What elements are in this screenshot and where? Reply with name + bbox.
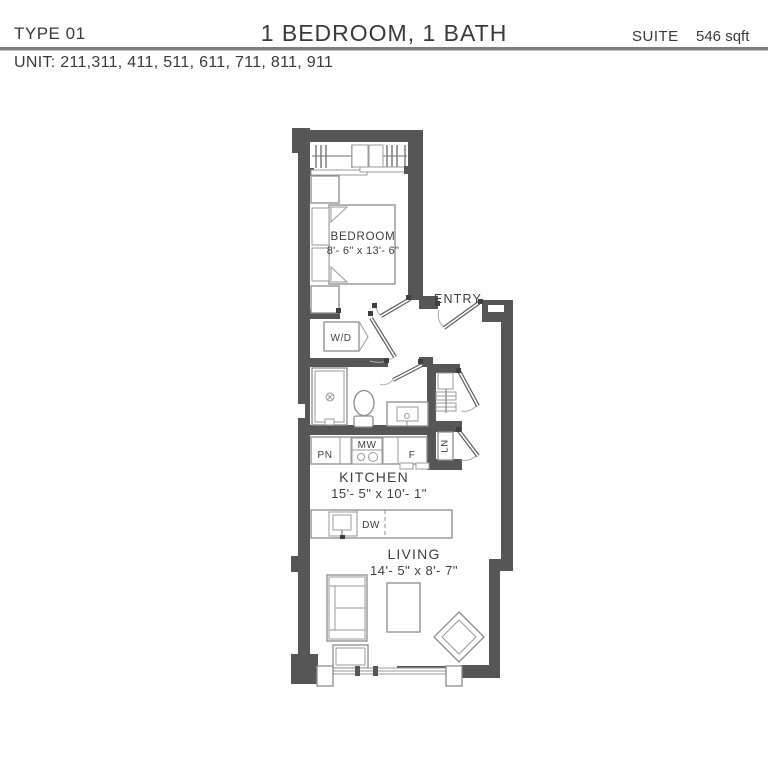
window-mullion <box>373 666 378 676</box>
wall-segment <box>489 559 513 571</box>
door-leaf-closet-lower-fill <box>459 431 478 456</box>
nightstand <box>311 176 339 203</box>
wall-segment <box>294 130 423 142</box>
bathroom <box>312 368 428 427</box>
shower-door-mark <box>325 419 334 425</box>
column-post <box>446 666 462 686</box>
living-dimensions: 14'- 5" x 8'- 7" <box>370 563 458 578</box>
sofa-cushion <box>335 586 365 608</box>
wall-segment <box>291 556 310 572</box>
bedroom-closet <box>309 145 409 176</box>
island-faucet-base <box>340 535 345 539</box>
door-swing-arc <box>461 405 477 411</box>
wall-segment <box>291 654 318 684</box>
door-leaf-closet-upper-fill <box>459 371 478 406</box>
floor-plan-drawing: BEDROOM 8'- 6" x 13'- 6" W/D <box>0 0 768 769</box>
tv-console-inner <box>336 648 365 665</box>
door-leaf-laundry-fill <box>371 318 395 357</box>
door-swing-arc <box>380 379 394 385</box>
fridge-handle <box>416 463 429 469</box>
slider-end-cap <box>404 166 409 174</box>
kitchen-dimensions: 15'- 5" x 10'- 1" <box>331 486 427 501</box>
floor-plan-page: TYPE 01 1 BEDROOM, 1 BATH SUITE 546 sqft… <box>0 0 768 769</box>
laundry-closet: W/D <box>324 322 368 351</box>
wall-segment <box>461 665 500 678</box>
washer-door-swing <box>360 323 368 350</box>
wall-segment <box>408 142 423 300</box>
sliding-door-panel <box>360 167 408 172</box>
wall-recess <box>298 404 305 418</box>
microwave-label: MW <box>358 440 377 451</box>
closet-shelf <box>438 373 453 389</box>
hall-closets: LN <box>436 373 456 460</box>
closet-shelf <box>352 145 368 167</box>
bedroom-label: BEDROOM <box>330 231 395 243</box>
toilet-tank <box>354 416 373 427</box>
bedroom-furniture: BEDROOM 8'- 6" x 13'- 6" <box>311 176 399 313</box>
toilet-bowl <box>354 391 374 416</box>
doors <box>336 295 483 460</box>
living-room: LIVING 14'- 5" x 8'- 7" <box>327 546 484 668</box>
fridge-label: F <box>409 450 416 461</box>
door-leaf-bedroom-fill <box>381 299 410 316</box>
closet-shelf <box>369 145 383 167</box>
sofa-arm <box>329 577 365 586</box>
bedroom-dimensions: 8'- 6" x 13'- 6" <box>327 245 399 257</box>
wall-recess <box>488 305 504 312</box>
living-label: LIVING <box>387 546 440 562</box>
linen-label: LN <box>440 439 451 452</box>
window-mullion <box>355 666 360 676</box>
door-swing-arc <box>461 455 477 460</box>
coffee-table <box>387 583 420 632</box>
washer-dryer-label: W/D <box>331 333 352 344</box>
entry-label: ENTRY <box>434 292 482 306</box>
sliding-door-panel <box>311 170 367 175</box>
sofa-cushion <box>335 608 365 630</box>
door-leaf-bathroom-fill <box>393 365 422 380</box>
column-post <box>317 666 333 686</box>
sofa-back <box>329 586 335 630</box>
window-wall <box>317 666 462 686</box>
island-sink-basin <box>333 515 351 530</box>
kitchen-label: KITCHEN <box>339 469 409 485</box>
door-swing-arc <box>438 310 445 328</box>
wall-segment <box>489 571 500 666</box>
dishwasher-label: DW <box>362 520 380 531</box>
pillow <box>312 208 329 245</box>
sofa-arm <box>329 630 365 639</box>
nightstand <box>311 286 339 313</box>
wall-segment <box>501 322 513 559</box>
pantry-label: PN <box>318 450 333 461</box>
